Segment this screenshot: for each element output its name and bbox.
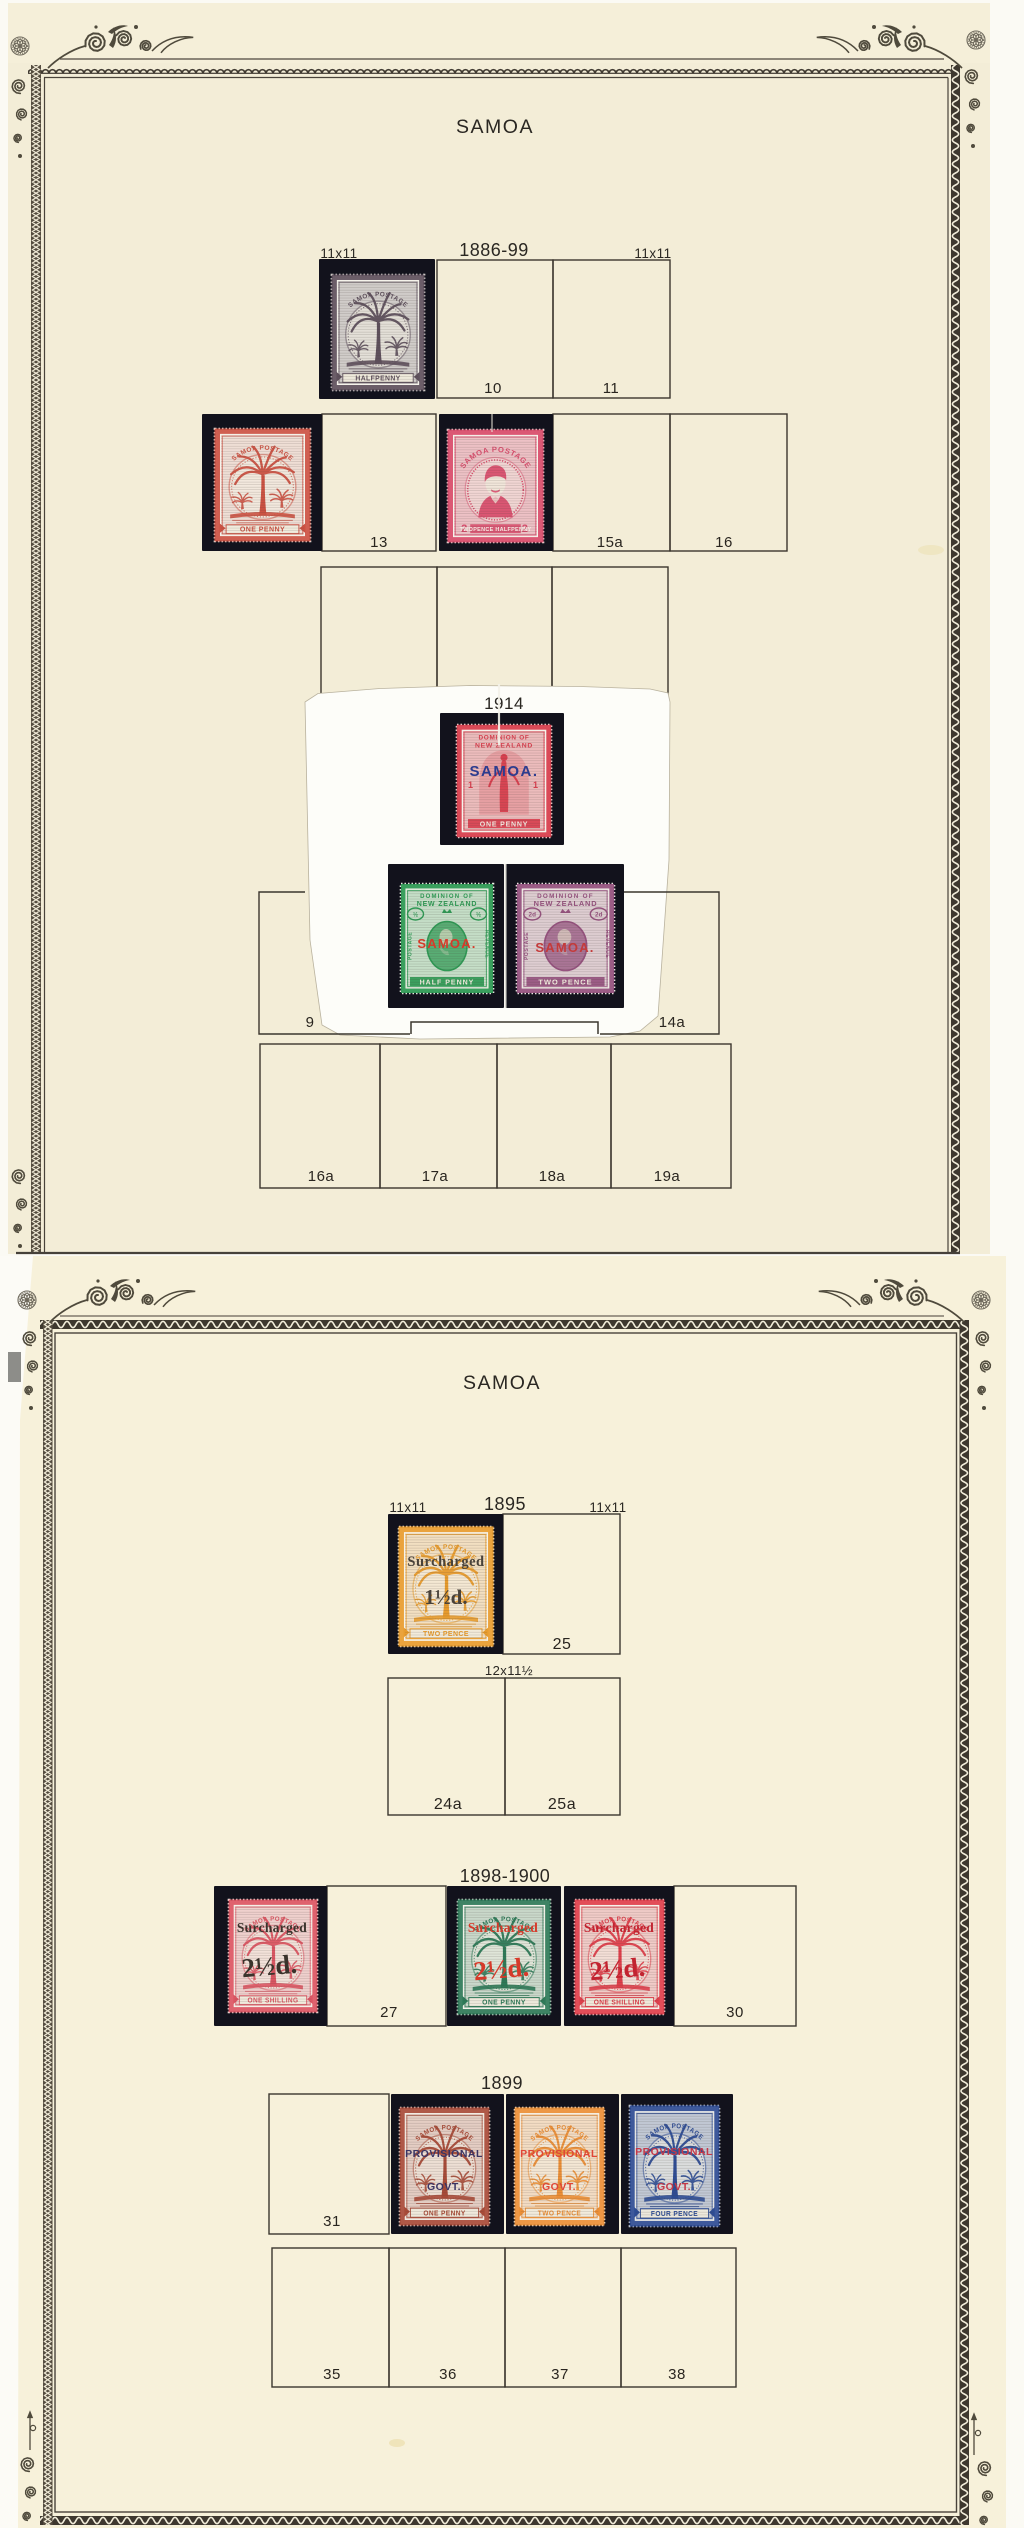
svg-text:24a: 24a — [434, 1796, 462, 1813]
svg-text:PROVISIONAL: PROVISIONAL — [405, 2148, 483, 2160]
svg-text:SAMOA.: SAMOA. — [470, 763, 539, 780]
svg-text:GOVT.: GOVT. — [542, 2181, 576, 2193]
svg-text:1898-1900: 1898-1900 — [460, 1866, 551, 1886]
svg-text:10: 10 — [484, 380, 502, 397]
svg-text:38: 38 — [668, 2366, 686, 2383]
svg-text:35: 35 — [323, 2366, 341, 2383]
svg-text:13: 13 — [370, 534, 388, 551]
svg-text:Surcharged: Surcharged — [468, 1920, 538, 1935]
svg-text:27: 27 — [380, 2004, 398, 2021]
svg-text:SAMOA.: SAMOA. — [535, 940, 594, 955]
svg-text:GOVT.: GOVT. — [657, 2181, 691, 2193]
svg-text:1886-99: 1886-99 — [459, 240, 529, 260]
svg-text:2½d.: 2½d. — [472, 1952, 530, 1987]
svg-text:18a: 18a — [539, 1168, 566, 1185]
svg-text:9: 9 — [306, 1014, 315, 1031]
svg-text:11x11: 11x11 — [389, 1500, 426, 1515]
svg-text:37: 37 — [551, 2366, 569, 2383]
svg-text:2½d.: 2½d. — [588, 1952, 646, 1987]
svg-text:PROVISIONAL: PROVISIONAL — [635, 2146, 713, 2158]
svg-text:1899: 1899 — [481, 2073, 523, 2093]
svg-text:19a: 19a — [654, 1168, 681, 1185]
svg-text:PROVISIONAL: PROVISIONAL — [520, 2148, 598, 2160]
svg-text:SAMOA: SAMOA — [456, 116, 534, 138]
svg-text:11x11: 11x11 — [634, 246, 671, 261]
svg-text:1½d.: 1½d. — [424, 1585, 467, 1609]
svg-text:31: 31 — [323, 2213, 341, 2230]
svg-text:11: 11 — [603, 380, 620, 397]
svg-text:GOVT.: GOVT. — [427, 2181, 461, 2193]
svg-text:SAMOA.: SAMOA. — [417, 936, 476, 951]
svg-text:30: 30 — [726, 2004, 744, 2021]
svg-text:Surcharged: Surcharged — [237, 1920, 307, 1935]
svg-text:1895: 1895 — [484, 1494, 526, 1514]
svg-text:Surcharged: Surcharged — [584, 1920, 654, 1935]
svg-text:11x11: 11x11 — [589, 1500, 626, 1515]
svg-text:17a: 17a — [422, 1168, 449, 1185]
svg-text:12x11½: 12x11½ — [485, 1663, 533, 1678]
svg-text:16: 16 — [715, 534, 733, 551]
svg-text:1914: 1914 — [484, 694, 524, 713]
svg-text:15a: 15a — [597, 534, 624, 551]
svg-text:SAMOA: SAMOA — [463, 1372, 541, 1394]
svg-text:16a: 16a — [308, 1168, 335, 1185]
svg-text:2½d.: 2½d. — [240, 1949, 298, 1984]
svg-text:14a: 14a — [659, 1014, 686, 1031]
svg-text:Surcharged: Surcharged — [407, 1554, 484, 1570]
svg-text:25a: 25a — [548, 1796, 576, 1813]
svg-text:36: 36 — [439, 2366, 457, 2383]
svg-text:25: 25 — [553, 1636, 572, 1653]
svg-text:11x11: 11x11 — [320, 246, 357, 261]
